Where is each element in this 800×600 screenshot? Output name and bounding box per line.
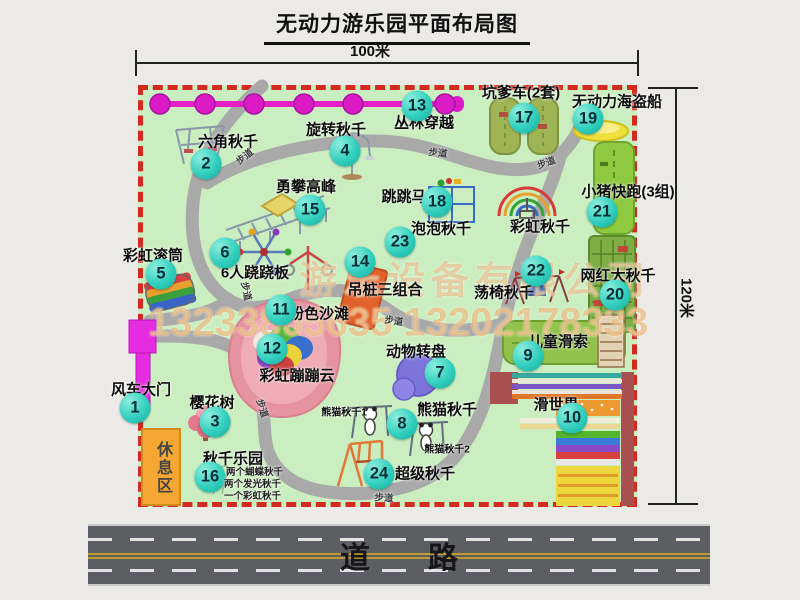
attraction-badge-13: 13	[402, 91, 433, 122]
attraction-badge-15: 15	[295, 195, 326, 226]
attraction-label-17: 坑爹车(2套)	[482, 82, 560, 103]
attraction-badge-18: 18	[422, 187, 453, 218]
rest-area-label: 休息区	[144, 433, 180, 503]
attraction-label-22: 荡椅秋千	[474, 282, 534, 303]
attraction-badge-8: 8	[387, 409, 418, 440]
attraction-badge-4: 4	[330, 136, 361, 167]
height-dimension-label: 120米	[677, 278, 698, 318]
attraction-badge-3: 3	[200, 407, 231, 438]
width-dimension-tick-left	[135, 50, 137, 76]
attraction-badge-5: 5	[146, 259, 177, 290]
attraction-badge-6: 6	[210, 238, 241, 269]
attraction-badge-14: 14	[345, 247, 376, 278]
attraction-badge-20: 20	[600, 280, 631, 311]
attraction-badge-19: 19	[573, 104, 604, 135]
attraction-label-15: 勇攀高峰	[276, 176, 336, 197]
attraction-label-24: 超级秋千	[395, 463, 455, 484]
attraction-label-12: 彩虹蹦蹦云	[259, 365, 334, 386]
width-dimension-tick-right	[637, 50, 639, 76]
attraction-label-23: 泡泡秋千	[411, 218, 471, 239]
attraction-label-8: 熊猫秋千	[417, 399, 477, 420]
attraction-badge-23: 23	[385, 227, 416, 258]
attraction-badge-1: 1	[120, 393, 151, 424]
attraction-badge-2: 2	[191, 149, 222, 180]
attraction-badge-11: 11	[266, 295, 297, 326]
attraction-label-14: 吊桩三组合	[347, 279, 422, 300]
attraction-badge-16: 16	[195, 462, 226, 493]
attraction-badge-10: 10	[557, 403, 588, 434]
attraction-badge-12: 12	[257, 334, 288, 365]
attraction-badge-22: 22	[521, 256, 552, 287]
road: 道路	[88, 524, 710, 586]
attraction-label-18: 跳跳马	[381, 186, 426, 207]
attraction-label-4: 旋转秋千	[306, 119, 366, 140]
width-dimension-line	[136, 62, 638, 64]
panda-swing-1-label: 熊猫秋千1	[321, 404, 367, 419]
page-title: 无动力游乐园平面布局图	[264, 8, 530, 45]
park-layout-plan: 无动力游乐园平面布局图 100米 120米	[0, 0, 800, 600]
attraction-badge-9: 9	[513, 341, 544, 372]
road-label: 道路	[88, 526, 710, 584]
attraction-badge-17: 17	[509, 103, 540, 134]
attraction-label-11: 粉色沙滩	[289, 303, 349, 324]
trail-label: 步道	[428, 144, 448, 160]
attraction-badge-7: 7	[425, 358, 456, 389]
height-dimension-tick-bottom	[648, 503, 698, 505]
height-dimension-tick-top	[648, 87, 698, 89]
attraction-badge-24: 24	[364, 459, 395, 490]
rainbow-swing-label: 彩虹秋千	[510, 216, 570, 237]
trail-label: 步道	[374, 489, 394, 504]
panda-swing-2-label: 熊猫秋千2	[424, 441, 470, 456]
attraction-badge-21: 21	[587, 197, 618, 228]
trail-label: 步道	[384, 312, 405, 329]
swing-park-note: 一个彩虹秋千	[224, 488, 281, 502]
